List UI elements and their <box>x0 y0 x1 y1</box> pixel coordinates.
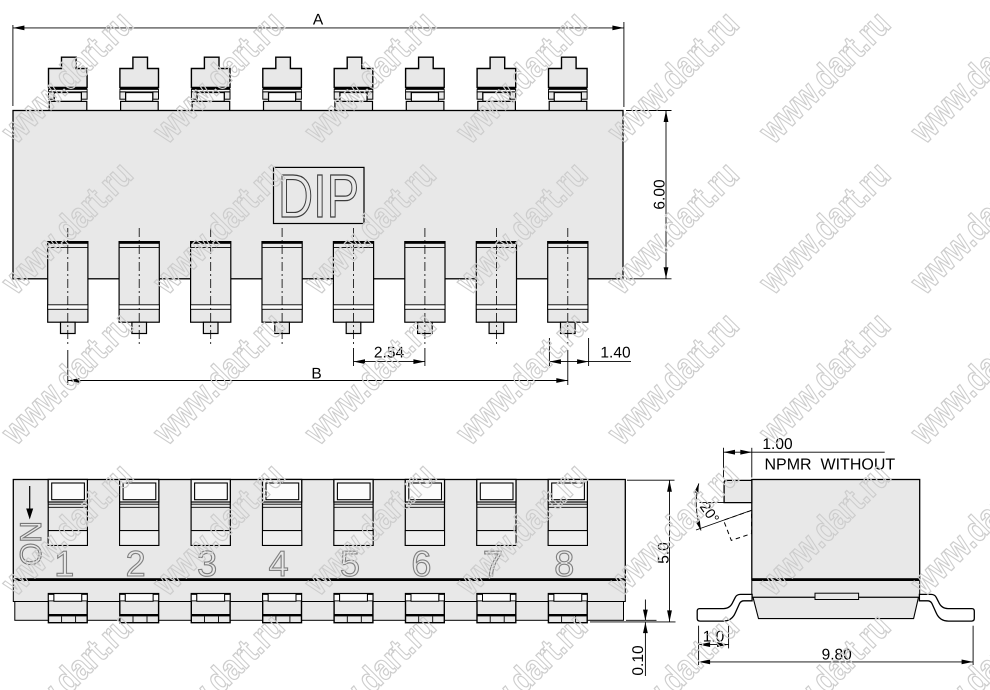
svg-text:8: 8 <box>554 543 574 584</box>
svg-text:0.10: 0.10 <box>630 645 647 676</box>
svg-text:6: 6 <box>411 543 431 584</box>
svg-text:A: A <box>313 12 324 29</box>
svg-text:1.40: 1.40 <box>600 345 631 362</box>
svg-text:4: 4 <box>269 543 289 584</box>
svg-text:2: 2 <box>126 543 146 584</box>
svg-text:B: B <box>311 366 321 383</box>
